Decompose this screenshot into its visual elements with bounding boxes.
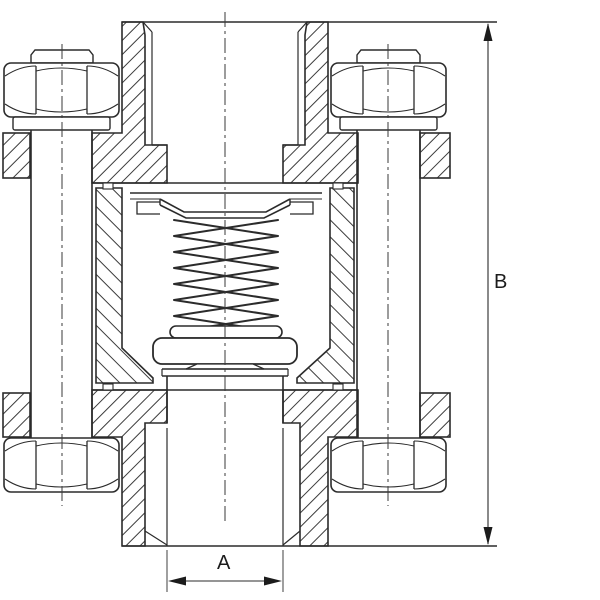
- spring: [174, 220, 278, 332]
- dimension-b: [484, 23, 493, 545]
- bottom-left-flange-plate: [3, 393, 30, 437]
- valve-cross-section-svg: [0, 0, 600, 600]
- chamber-left-wall: [96, 188, 153, 383]
- dimension-b-label: B: [494, 271, 508, 294]
- spring-retainer: [130, 193, 322, 218]
- dimension-b-arrow-down: [484, 527, 493, 545]
- top-right-flange-plate: [420, 133, 450, 178]
- dimension-b-arrow-up: [484, 23, 493, 41]
- dimension-a-arrow-right: [264, 577, 282, 586]
- top-left-flange-plate: [3, 133, 30, 178]
- technical-drawing-check-valve: A B: [0, 0, 600, 600]
- spring-bottom-coil: [170, 326, 282, 338]
- chamber-right-wall: [297, 188, 354, 383]
- bottom-right-flange-plate: [420, 393, 450, 437]
- bottom-port: [145, 428, 300, 546]
- dimension-a-label: A: [217, 552, 231, 575]
- dimension-a-arrow-left: [168, 577, 186, 586]
